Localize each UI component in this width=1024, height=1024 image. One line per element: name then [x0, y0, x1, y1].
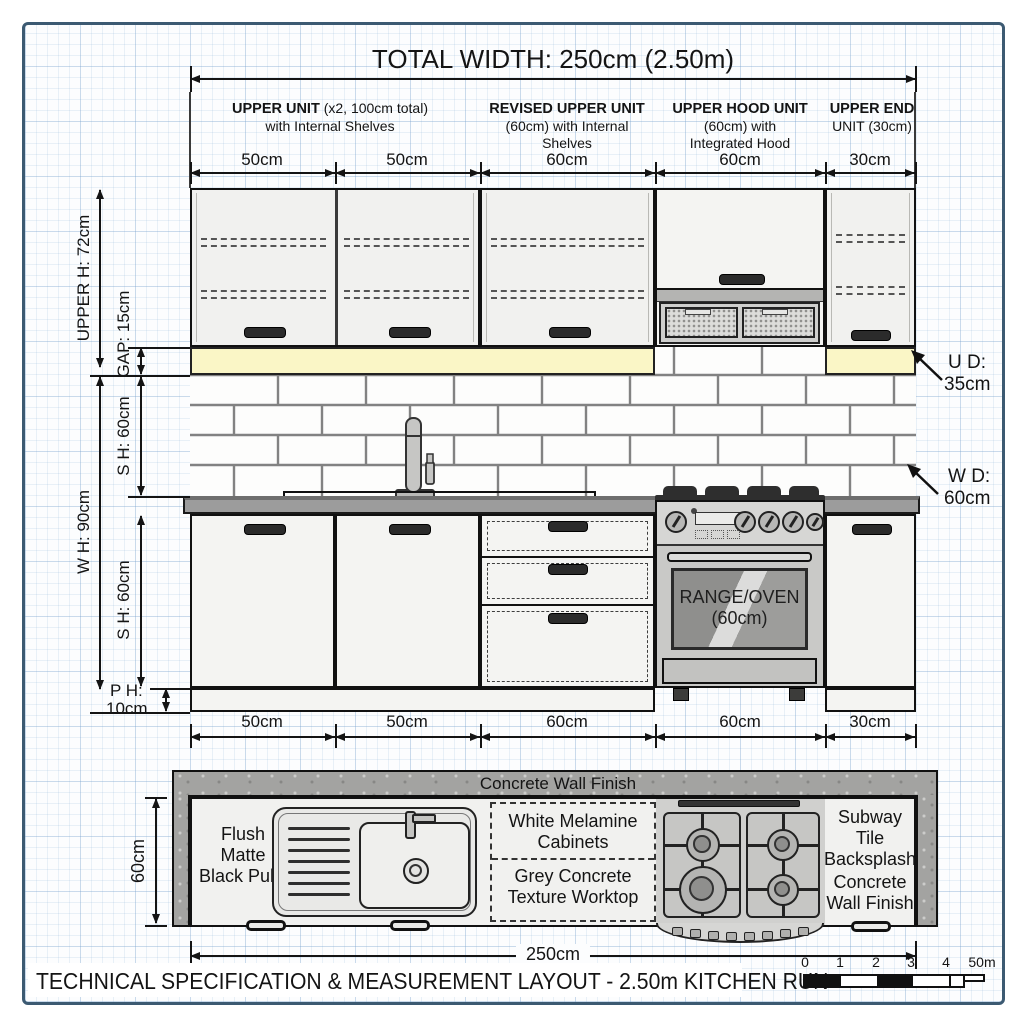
dimension-line	[655, 736, 825, 738]
reference-line	[128, 347, 190, 349]
scale-bar: 0 1 2 3 4 50m	[796, 953, 996, 993]
plan-hob-section	[656, 799, 825, 925]
dim-tick	[655, 162, 657, 184]
hob-back-bar	[678, 800, 800, 807]
callout-line: Grey Concrete	[508, 866, 639, 887]
plan-depth-dim	[155, 799, 157, 923]
plan-knob	[744, 932, 755, 941]
dim-label: 60cm	[546, 150, 588, 170]
dim-label: 30cm	[849, 712, 891, 732]
drain	[403, 858, 429, 884]
revised-upper-unit-description: REVISED UPPER UNIT (60cm) with Internal …	[489, 100, 645, 152]
upper-unit-description: UPPER UNIT (x2, 100cm total) with Intern…	[232, 100, 428, 135]
burner-small	[767, 829, 799, 861]
desc-line: (60cm) with	[672, 118, 807, 135]
control-panel	[657, 502, 823, 546]
drainer-rib	[288, 838, 350, 841]
base-height-label: S H: 60cm	[114, 530, 134, 670]
dimension-line	[480, 736, 655, 738]
door-handle	[852, 524, 892, 535]
scale-label: 3	[907, 954, 915, 970]
drainer-rib	[288, 827, 350, 830]
worktop-depth-value: 60cm	[944, 488, 990, 510]
wall-finish-callout: Concrete Wall Finish	[826, 872, 913, 914]
drainer-rib	[288, 893, 350, 896]
plan-knob	[762, 931, 773, 940]
dim-label: 60cm	[546, 712, 588, 732]
internal-shelf-dashed	[344, 238, 469, 247]
dim-tick	[825, 724, 827, 748]
plan-knob	[672, 927, 683, 936]
reference-line	[128, 496, 190, 498]
under-cabinet-light-strip	[825, 347, 916, 375]
range-foot	[673, 688, 689, 701]
hood-mesh-filter	[742, 307, 815, 338]
base-door-unit	[335, 514, 480, 688]
dim-tick	[915, 66, 917, 92]
hob-grate-right	[746, 812, 820, 918]
callout-line: Cabinets	[508, 832, 637, 853]
range-body: RANGE/OVEN (60cm)	[655, 500, 825, 688]
plan-knob	[726, 932, 737, 941]
dim-tick	[480, 724, 482, 748]
drain-inner	[409, 864, 422, 877]
callout-line: Wall Finish	[826, 893, 913, 914]
drainer-rib	[288, 871, 350, 874]
plan-wall-band: Concrete Wall Finish	[172, 770, 938, 797]
gap-dim	[140, 348, 142, 374]
hood-trim-band	[657, 290, 823, 302]
worktop-callout: Grey Concrete Texture Worktop	[508, 866, 639, 908]
range-label-line2: (60cm)	[674, 608, 805, 629]
plinth	[190, 688, 655, 712]
plan-knob	[708, 931, 719, 940]
base-drawer-unit	[480, 514, 655, 688]
callout-line: Concrete	[826, 872, 913, 893]
program-icon	[727, 530, 740, 539]
callout-line: White Melamine	[508, 811, 637, 832]
dimension-line	[190, 172, 335, 174]
base-end-unit	[825, 514, 916, 688]
plan-width-label: 250cm	[516, 944, 590, 965]
upper-height-label: UPPER H: 72cm	[74, 208, 94, 348]
door-handle	[851, 330, 891, 341]
filter-tab	[685, 309, 711, 315]
under-cabinet-light-strip	[190, 347, 655, 375]
oven-handle	[667, 552, 812, 562]
plan-sink	[272, 807, 477, 917]
revised-upper-unit	[480, 188, 655, 347]
callout-line: Tile	[824, 828, 916, 849]
control-knob	[806, 513, 824, 531]
desc-heading: UPPER UNIT	[232, 101, 320, 117]
plan-mid-section: White Melamine Cabinets Grey Concrete Te…	[490, 802, 656, 922]
scale-label: 4	[942, 954, 950, 970]
scale-label: 2	[872, 954, 880, 970]
callout-line: Texture Worktop	[508, 887, 639, 908]
program-icon	[695, 530, 708, 539]
plan-knob	[798, 927, 809, 936]
scale-segment	[877, 976, 913, 986]
base-height-dim	[140, 516, 142, 686]
internal-shelf-dashed	[201, 290, 326, 299]
desc-line: with Internal Shelves	[232, 118, 428, 135]
reference-line	[90, 712, 190, 714]
range-label-line1: RANGE/OVEN	[674, 587, 805, 608]
splash-height-label: S H: 60cm	[114, 366, 134, 506]
dim-tick	[480, 162, 482, 184]
plan-knob	[690, 929, 701, 938]
dimension-line	[825, 172, 915, 174]
technical-drawing-canvas: TOTAL WIDTH: 250cm (2.50m) UPPER UNIT (x…	[0, 0, 1024, 1024]
dimension-line	[190, 736, 335, 738]
worktop-height-dim	[99, 377, 101, 689]
desc-line: UNIT (30cm)	[830, 118, 915, 135]
dim-tick	[335, 162, 337, 184]
dim-label: 50cm	[241, 150, 283, 170]
scale-label: 50m	[968, 954, 995, 970]
scale-segment-divider	[949, 976, 951, 986]
plan-tap-lever	[412, 814, 436, 823]
desc-heading: UPPER END	[830, 101, 915, 117]
door-handle	[244, 524, 286, 535]
upper-end-unit-description: UPPER END UNIT (30cm)	[830, 100, 915, 135]
door-handle	[244, 327, 286, 338]
program-icon	[711, 530, 724, 539]
range-foot	[789, 688, 805, 701]
burner-small	[767, 874, 799, 906]
hood-door	[657, 190, 823, 290]
storage-drawer	[662, 658, 817, 684]
flush-pull	[246, 920, 286, 931]
hob-grate-left	[663, 812, 741, 918]
plinth-height-label: P H:	[110, 681, 143, 701]
worktop-height-label: W H: 90cm	[74, 462, 94, 602]
internal-shelf-dashed	[491, 290, 644, 299]
door-handle	[549, 327, 591, 338]
internal-shelf-dashed	[836, 234, 905, 243]
dim-tick	[335, 724, 337, 748]
drawer	[482, 606, 653, 687]
worktop-depth-arrow	[902, 462, 944, 498]
upper-height-dim	[99, 190, 101, 367]
dim-tick	[915, 724, 917, 748]
upper-depth-value: 35cm	[944, 374, 990, 396]
dim-tick	[825, 162, 827, 184]
upper-depth-label: U D:	[948, 352, 986, 374]
splash-height-dim	[140, 377, 142, 495]
door-divider	[335, 190, 338, 345]
plan-knob	[780, 929, 791, 938]
dim-label: 60cm	[719, 150, 761, 170]
scale-bar-body	[803, 974, 965, 988]
dim-tick	[145, 925, 167, 927]
scale-bar-tail	[963, 974, 985, 982]
control-knob	[665, 511, 687, 533]
upper-depth-arrow	[906, 348, 948, 384]
dim-tick	[190, 66, 192, 92]
faucet	[382, 410, 452, 500]
drainer-rib	[288, 860, 350, 863]
reference-line	[150, 688, 190, 690]
upper-hood-unit-description: UPPER HOOD UNIT (60cm) with Integrated H…	[672, 100, 807, 152]
control-knob	[734, 511, 756, 533]
flush-pull	[390, 920, 430, 931]
desc-detail: (x2, 100cm total)	[320, 100, 428, 116]
dim-tick	[915, 162, 917, 184]
upper-unit-double	[190, 188, 480, 347]
plan-depth-label: 60cm	[128, 791, 148, 931]
cabinet-frame	[486, 193, 649, 342]
drawer	[482, 516, 653, 558]
drawer-handle	[548, 564, 588, 575]
dim-label: 50cm	[241, 712, 283, 732]
dim-label: 30cm	[849, 150, 891, 170]
title-block: TECHNICAL SPECIFICATION & MEASUREMENT LA…	[28, 963, 742, 997]
upper-end-unit	[825, 188, 916, 347]
plinth	[825, 688, 916, 712]
door-handle	[389, 524, 431, 535]
burner-large	[679, 866, 727, 914]
dimension-line	[335, 172, 480, 174]
drawer-handle	[548, 521, 588, 532]
control-knob	[758, 511, 780, 533]
total-width-title: TOTAL WIDTH: 250cm (2.50m)	[372, 44, 734, 75]
worktop-depth-label: W D:	[948, 466, 990, 488]
plinth-height-dim	[165, 689, 167, 711]
dim-tick	[190, 724, 192, 748]
door-handle	[389, 327, 431, 338]
internal-shelf-dashed	[836, 286, 905, 295]
internal-shelf-dashed	[344, 290, 469, 299]
drainer-rib	[288, 849, 350, 852]
burner-small	[686, 828, 720, 862]
plinth-height-value: 10cm	[106, 699, 148, 719]
wall-finish-label: Concrete Wall Finish	[480, 774, 636, 794]
total-width-dimension-line	[190, 78, 916, 80]
internal-shelf-dashed	[491, 238, 644, 247]
drawer	[482, 558, 653, 606]
backsplash-callout: Subway Tile Backsplash	[824, 807, 916, 870]
filter-tab	[762, 309, 788, 315]
cabinet-frame	[831, 193, 910, 342]
desc-heading: UPPER HOOD UNIT	[672, 101, 807, 117]
callout-line: Subway	[824, 807, 916, 828]
drainer-rib	[288, 882, 350, 885]
desc-line: (60cm) with Internal	[489, 118, 645, 135]
reference-line	[90, 375, 190, 377]
hood-filter-housing	[659, 302, 820, 344]
scale-label: 0	[801, 954, 809, 970]
dim-label: 50cm	[386, 712, 428, 732]
control-knob	[782, 511, 804, 533]
desc-heading: REVISED UPPER UNIT	[489, 101, 645, 117]
scale-label: 1	[836, 954, 844, 970]
internal-shelf-dashed	[201, 238, 326, 247]
cabinets-callout: White Melamine Cabinets	[508, 811, 637, 853]
dim-label: 60cm	[719, 712, 761, 732]
dim-label: 50cm	[386, 150, 428, 170]
hood-mesh-filter	[665, 307, 738, 338]
callout-line: Backsplash	[824, 849, 916, 870]
dim-tick	[190, 162, 192, 184]
drawer-handle	[548, 613, 588, 624]
dimension-line	[480, 172, 655, 174]
scale-segment	[805, 976, 841, 986]
dim-tick	[655, 724, 657, 748]
base-door-unit	[190, 514, 335, 688]
dimension-line	[825, 736, 915, 738]
dashed-divider	[492, 858, 654, 860]
plan-wall-return-left	[172, 795, 190, 927]
dimension-line	[335, 736, 480, 738]
upper-hood-unit	[655, 188, 825, 347]
dim-tick	[145, 797, 167, 799]
range-oven: RANGE/OVEN (60cm)	[655, 486, 825, 702]
dimension-line	[655, 172, 825, 174]
hood-door-handle	[719, 274, 765, 285]
flush-pull	[851, 921, 891, 932]
drawing-title: TECHNICAL SPECIFICATION & MEASUREMENT LA…	[36, 968, 828, 995]
oven-window: RANGE/OVEN (60cm)	[671, 568, 808, 650]
plan-wall-return-right	[916, 795, 938, 927]
